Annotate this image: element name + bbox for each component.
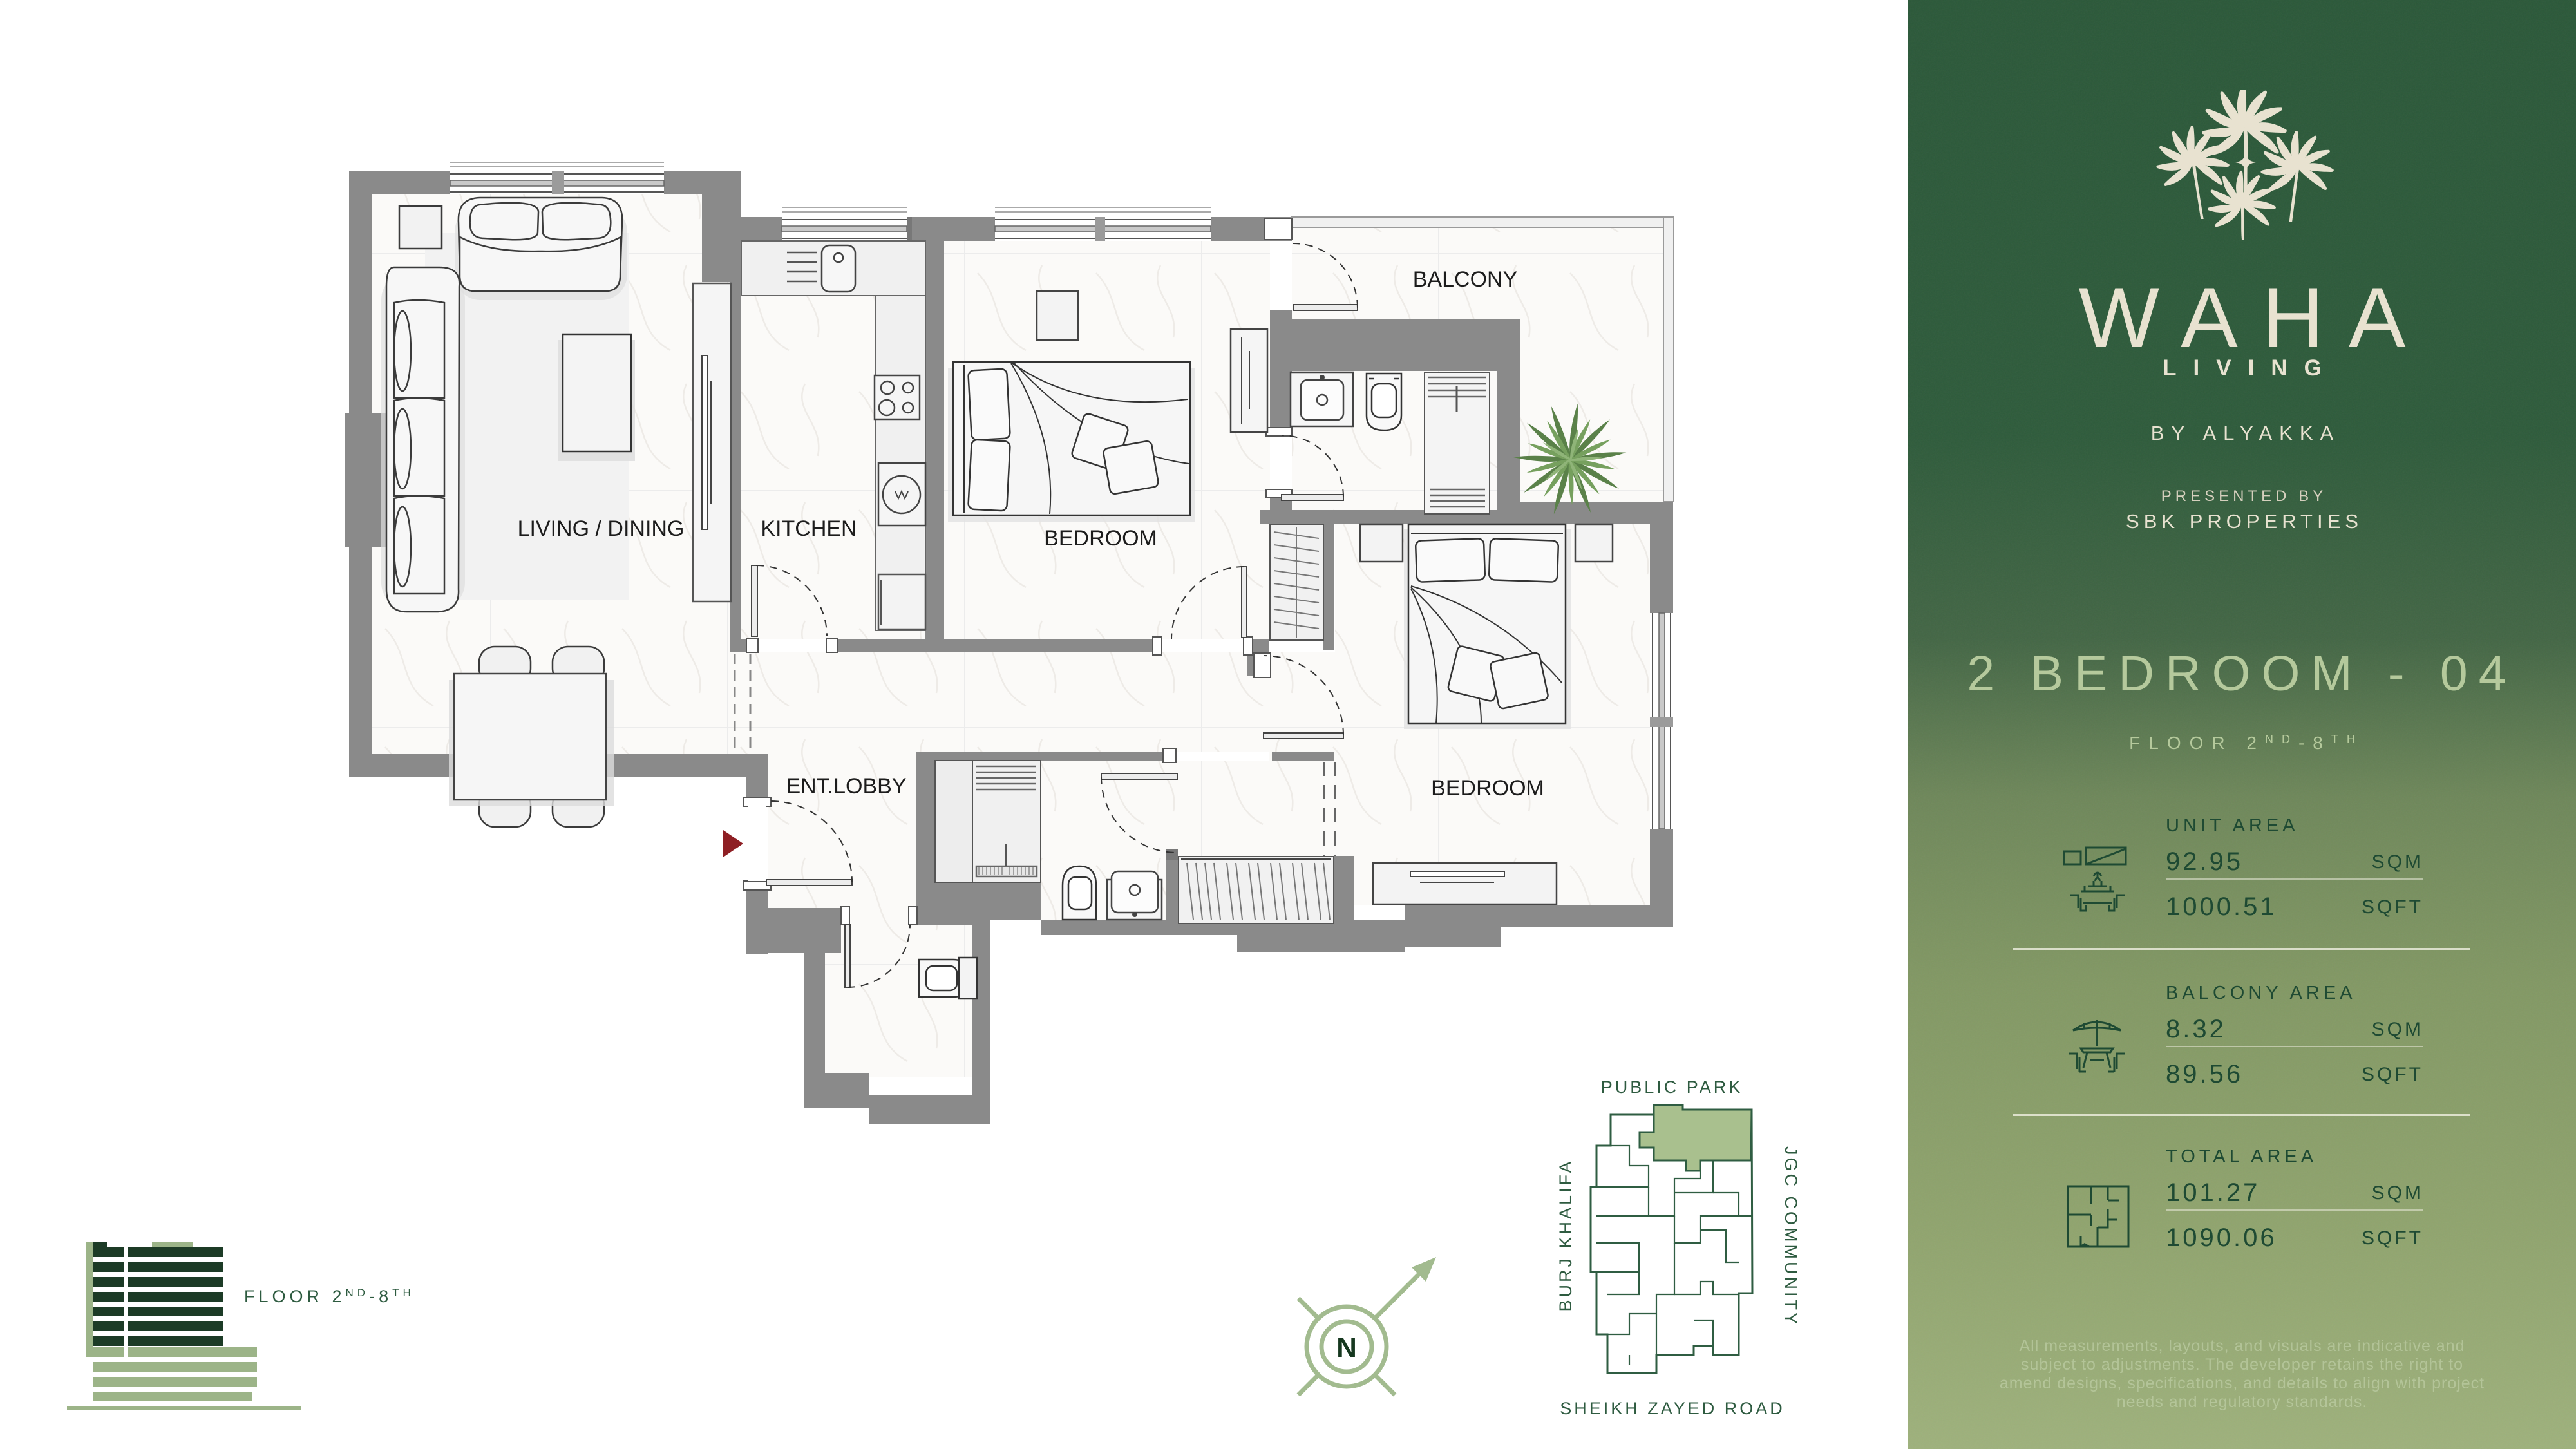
svg-text:BEDROOM: BEDROOM (1431, 776, 1544, 800)
svg-text:ENT.LOBBY: ENT.LOBBY (786, 774, 906, 799)
svg-text:KITCHEN: KITCHEN (761, 516, 857, 541)
svg-text:PUBLIC PARK: PUBLIC PARK (1601, 1077, 1743, 1097)
svg-text:LIVING / DINING: LIVING / DINING (518, 516, 685, 541)
svg-text:N: N (1336, 1332, 1357, 1363)
svg-text:JGC COMMUNITY: JGC COMMUNITY (1781, 1146, 1801, 1327)
svg-text:BEDROOM: BEDROOM (1044, 526, 1157, 551)
svg-text:BURJ KHALIFA: BURJ KHALIFA (1556, 1159, 1575, 1311)
svg-text:FLOOR 2ND-8TH: FLOOR 2ND-8TH (244, 1287, 415, 1306)
svg-text:SHEIKH ZAYED ROAD: SHEIKH ZAYED ROAD (1560, 1399, 1785, 1418)
svg-text:BALCONY: BALCONY (1413, 267, 1518, 292)
